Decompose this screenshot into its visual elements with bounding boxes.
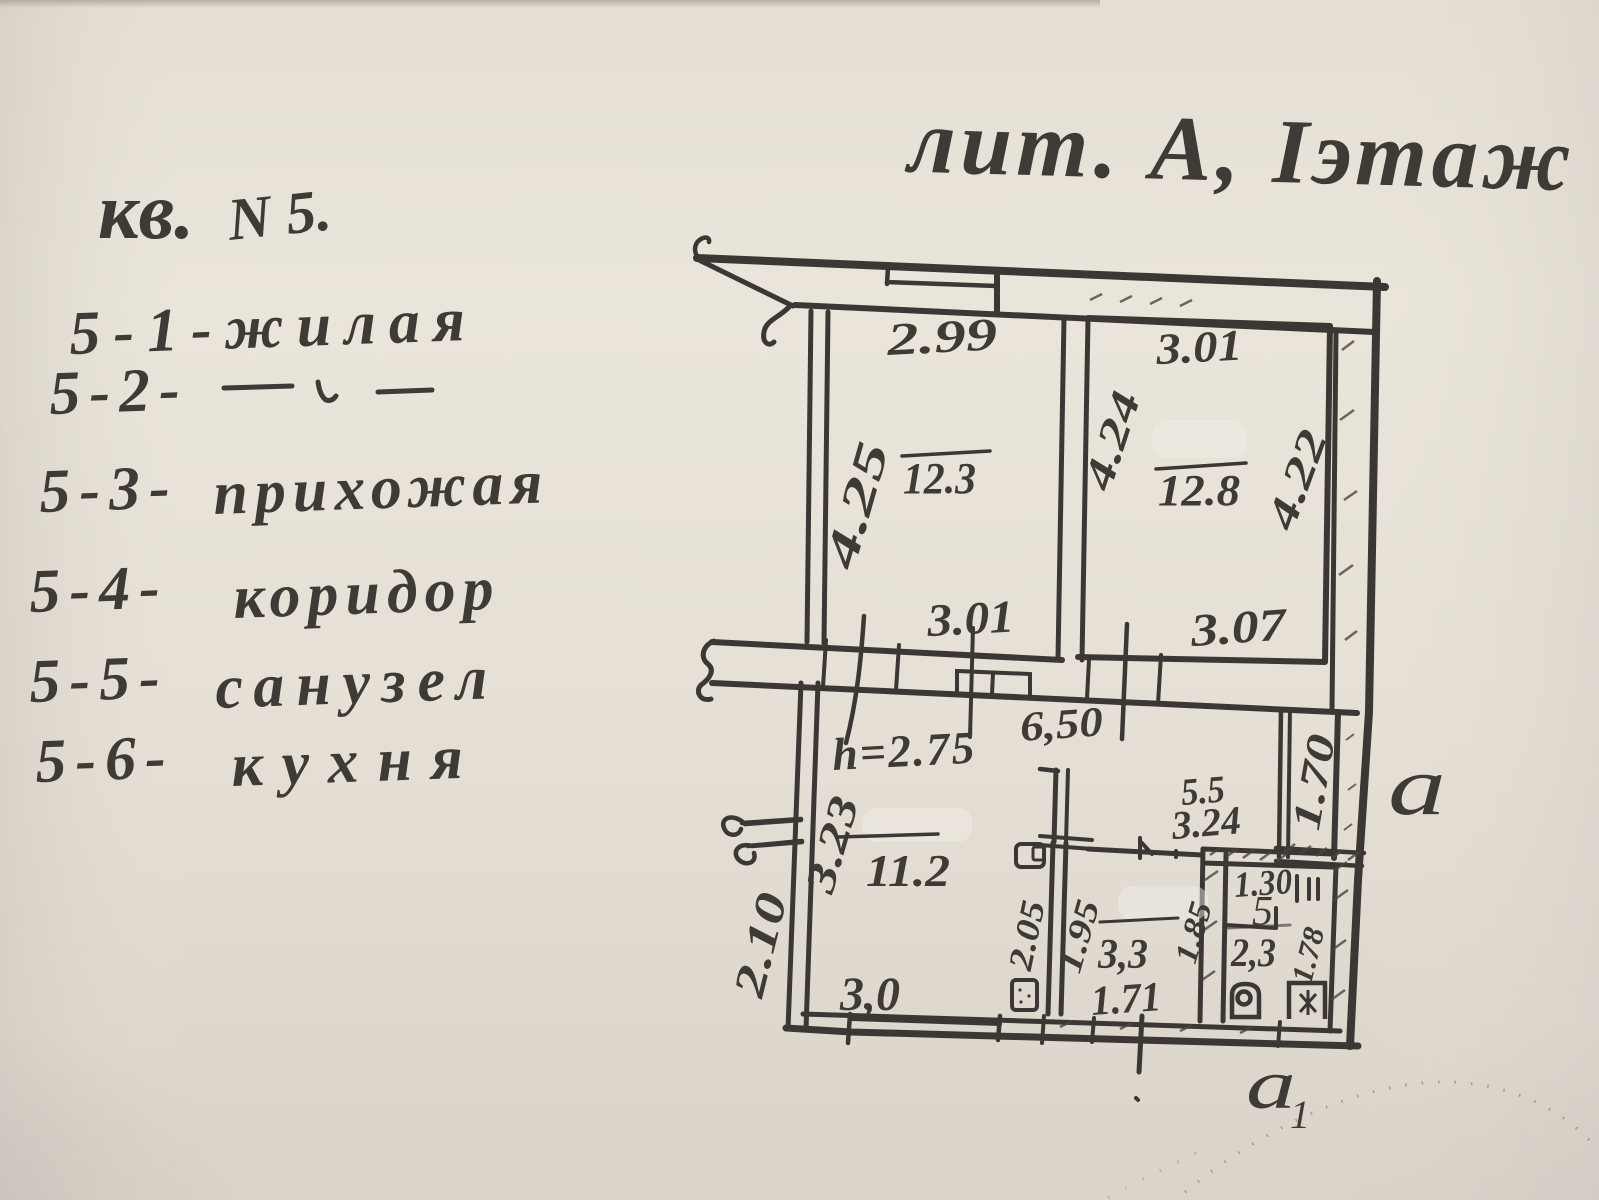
svg-text:5-2-: 5-2- — [48, 355, 190, 428]
svg-text:1.71: 1.71 — [1089, 974, 1162, 1025]
svg-text:6,50: 6,50 — [1018, 699, 1104, 751]
svg-text:3.24: 3.24 — [1169, 797, 1243, 848]
svg-text:кухня: кухня — [230, 723, 483, 800]
svg-text:12.3: 12.3 — [903, 454, 976, 503]
svg-text:коридор: коридор — [232, 555, 502, 632]
svg-text:1: 1 — [1290, 1092, 1310, 1137]
svg-text:прихожая: прихожая — [212, 448, 550, 528]
svg-text:3,0: 3,0 — [839, 968, 900, 1021]
svg-text:3.01: 3.01 — [925, 591, 1016, 647]
svg-text:5-6-: 5-6- — [34, 723, 176, 796]
svg-text:3.01: 3.01 — [1154, 321, 1244, 374]
svg-text:3.07: 3.07 — [1188, 598, 1290, 656]
svg-text:N 5.: N 5. — [223, 176, 334, 253]
svg-text:12.8: 12.8 — [1158, 466, 1240, 515]
svg-text:санузел: санузел — [214, 644, 500, 722]
svg-text:1.30: 1.30 — [1233, 861, 1294, 905]
svg-text:3,3: 3,3 — [1097, 932, 1148, 978]
svg-text:кв.: кв. — [98, 168, 194, 256]
svg-text:5-3-: 5-3- — [38, 453, 180, 526]
svg-text:лит. А, Іэтаж: лит. А, Іэтаж — [903, 90, 1577, 211]
svg-text:5-1-жилая: 5-1-жилая — [68, 286, 479, 368]
svg-text:11.2: 11.2 — [866, 845, 950, 896]
svg-text:a: a — [1246, 1047, 1296, 1124]
svg-text:a: a — [1388, 740, 1446, 833]
svg-text:2,3: 2,3 — [1230, 930, 1276, 975]
svg-text:h=2.75: h=2.75 — [831, 722, 978, 780]
svg-text:5-4-: 5-4- — [28, 553, 170, 626]
svg-text:5-5-: 5-5- — [28, 643, 170, 716]
svg-text:2.99: 2.99 — [884, 308, 998, 365]
